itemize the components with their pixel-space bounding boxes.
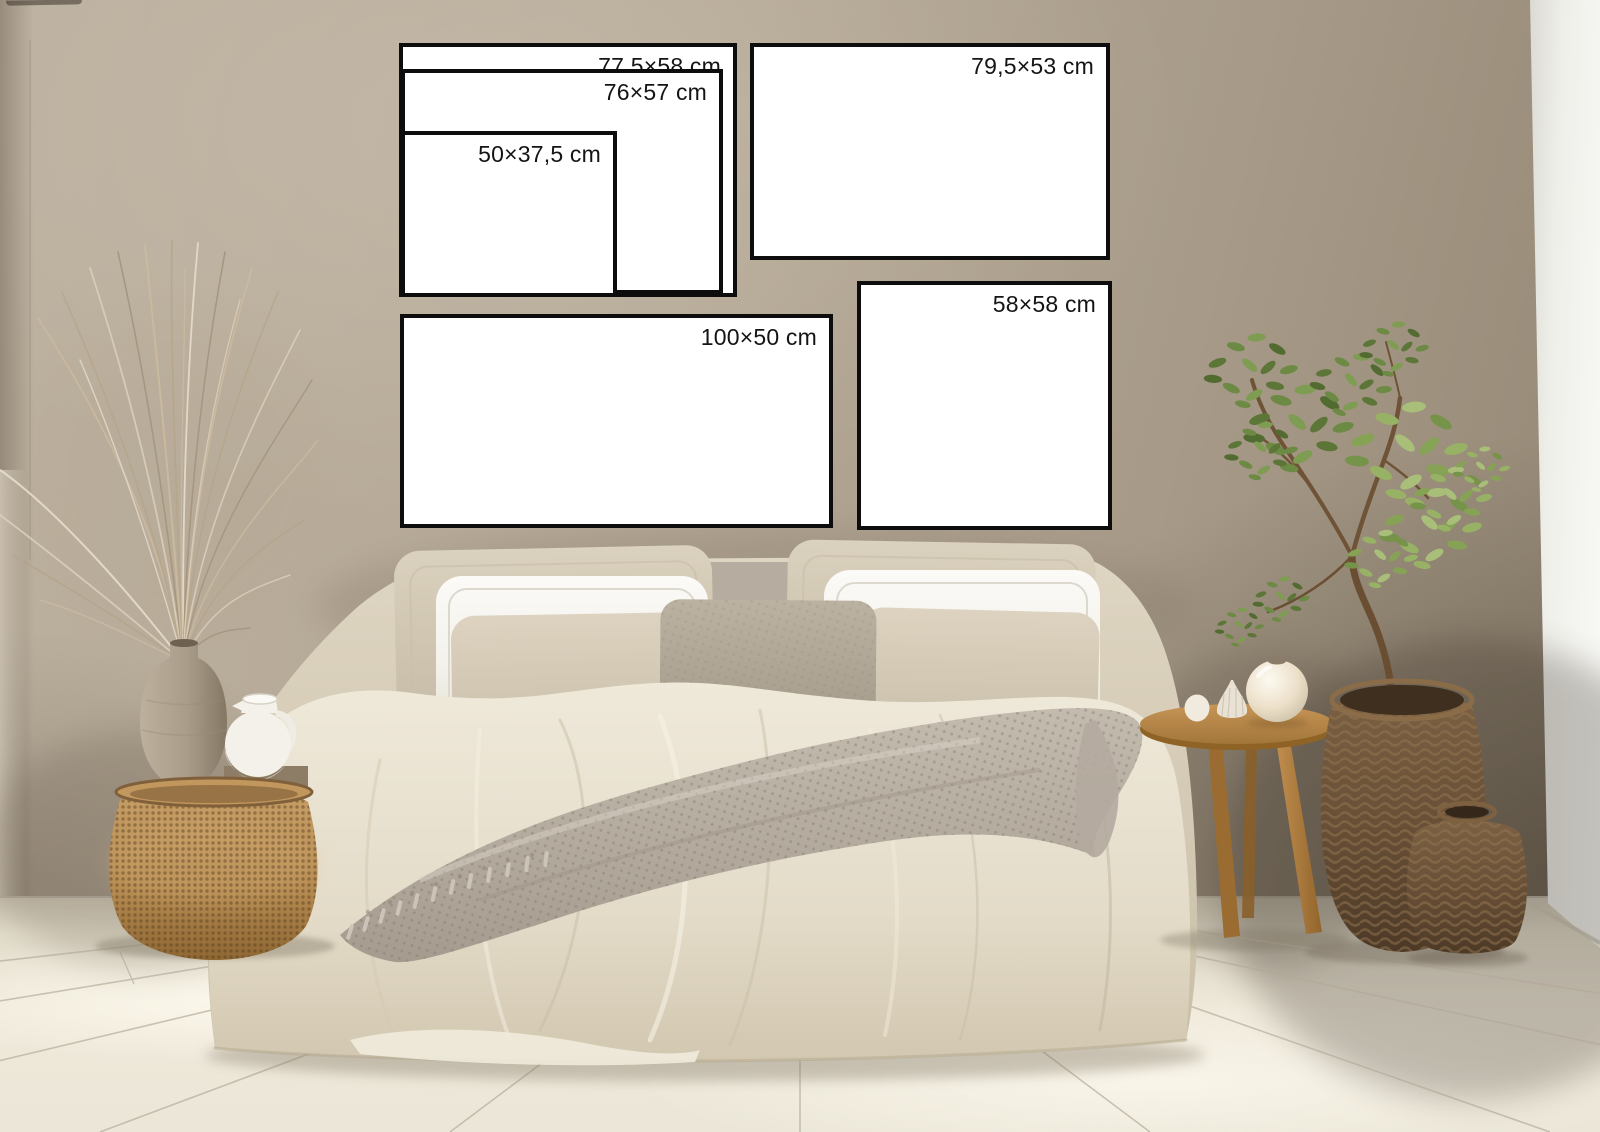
bottle-vase <box>140 639 227 788</box>
bed <box>208 539 1197 1065</box>
size-frame-58x58-cm: 58×58 cm <box>857 281 1112 530</box>
size-frame-100x50-cm: 100×50 cm <box>400 314 833 528</box>
size-frame-50x37-5-cm: 50×37,5 cm <box>401 131 617 297</box>
size-label: 100×50 cm <box>701 323 817 351</box>
size-label: 58×58 cm <box>993 290 1096 318</box>
size-label: 50×37,5 cm <box>478 140 601 168</box>
size-frame-79-5x53-cm: 79,5×53 cm <box>750 43 1110 260</box>
bedroom-poster-size-mockup: 77,5×58 cm 76×57 cm 50×37,5 cm 79,5×53 c… <box>0 0 1600 1132</box>
pebble-vase <box>1185 695 1210 722</box>
size-label: 79,5×53 cm <box>971 52 1094 80</box>
dried-grass <box>0 240 330 662</box>
foliage <box>1203 321 1510 647</box>
wicker-basket-table <box>107 778 318 960</box>
size-label: 76×57 cm <box>604 78 707 106</box>
